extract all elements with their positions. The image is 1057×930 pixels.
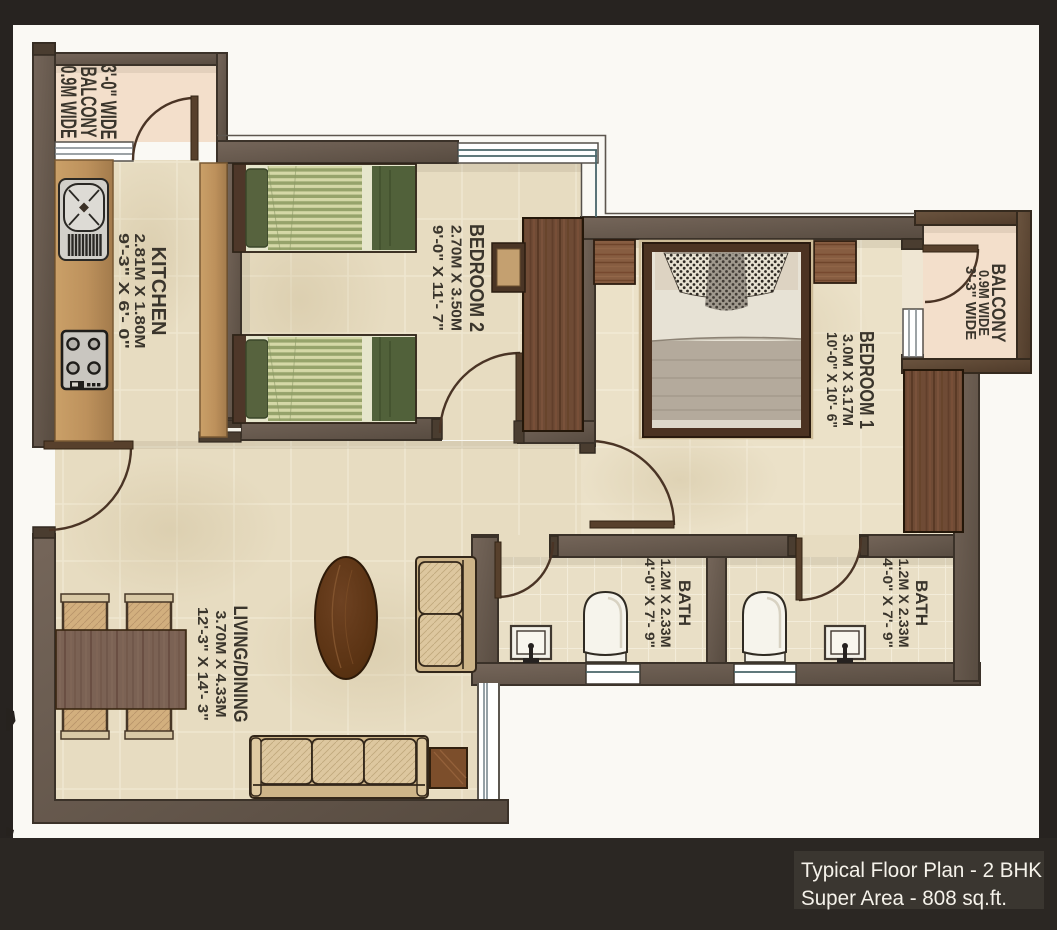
svg-text:3'-3" WIDE: 3'-3" WIDE (962, 266, 979, 340)
svg-text:9'-0" X 11'- 7": 9'-0" X 11'- 7" (429, 225, 446, 331)
svg-text:4'-0" X 7'- 9": 4'-0" X 7'- 9" (642, 558, 658, 648)
svg-text:BEDROOM 1: BEDROOM 1 (855, 331, 877, 429)
svg-text:2.70M X 3.50M: 2.70M X 3.50M (448, 225, 465, 331)
svg-text:0.9M WIDE: 0.9M WIDE (56, 66, 81, 139)
svg-text:KITCHEN: KITCHEN (147, 247, 169, 336)
svg-text:Super Area - 808 sq.ft.: Super Area - 808 sq.ft. (801, 886, 1007, 910)
svg-text:4'-0" X 7'- 9": 4'-0" X 7'- 9" (880, 558, 896, 648)
svg-text:2.81M X 1.80M: 2.81M X 1.80M (131, 234, 148, 349)
svg-text:BATH: BATH (675, 580, 694, 626)
svg-text:1.2M X 2.33M: 1.2M X 2.33M (896, 559, 912, 648)
svg-text:1.2M X 2.33M: 1.2M X 2.33M (658, 559, 674, 648)
svg-text:3.0M X 3.17M: 3.0M X 3.17M (839, 334, 856, 426)
svg-text:Typical Floor Plan - 2 BHK: Typical Floor Plan - 2 BHK (801, 858, 1043, 882)
svg-text:10'-0" X 10'- 6": 10'-0" X 10'- 6" (823, 332, 840, 428)
svg-text:LIVING/DINING: LIVING/DINING (229, 606, 250, 723)
svg-text:9'-3" X 6'- 0": 9'-3" X 6'- 0" (115, 233, 132, 349)
svg-text:3.70M X 4.33M: 3.70M X 4.33M (212, 611, 229, 718)
svg-text:12'-3" X 14'- 3": 12'-3" X 14'- 3" (194, 607, 211, 721)
svg-text:BATH: BATH (912, 580, 931, 626)
svg-text:BEDROOM 2: BEDROOM 2 (465, 224, 487, 332)
